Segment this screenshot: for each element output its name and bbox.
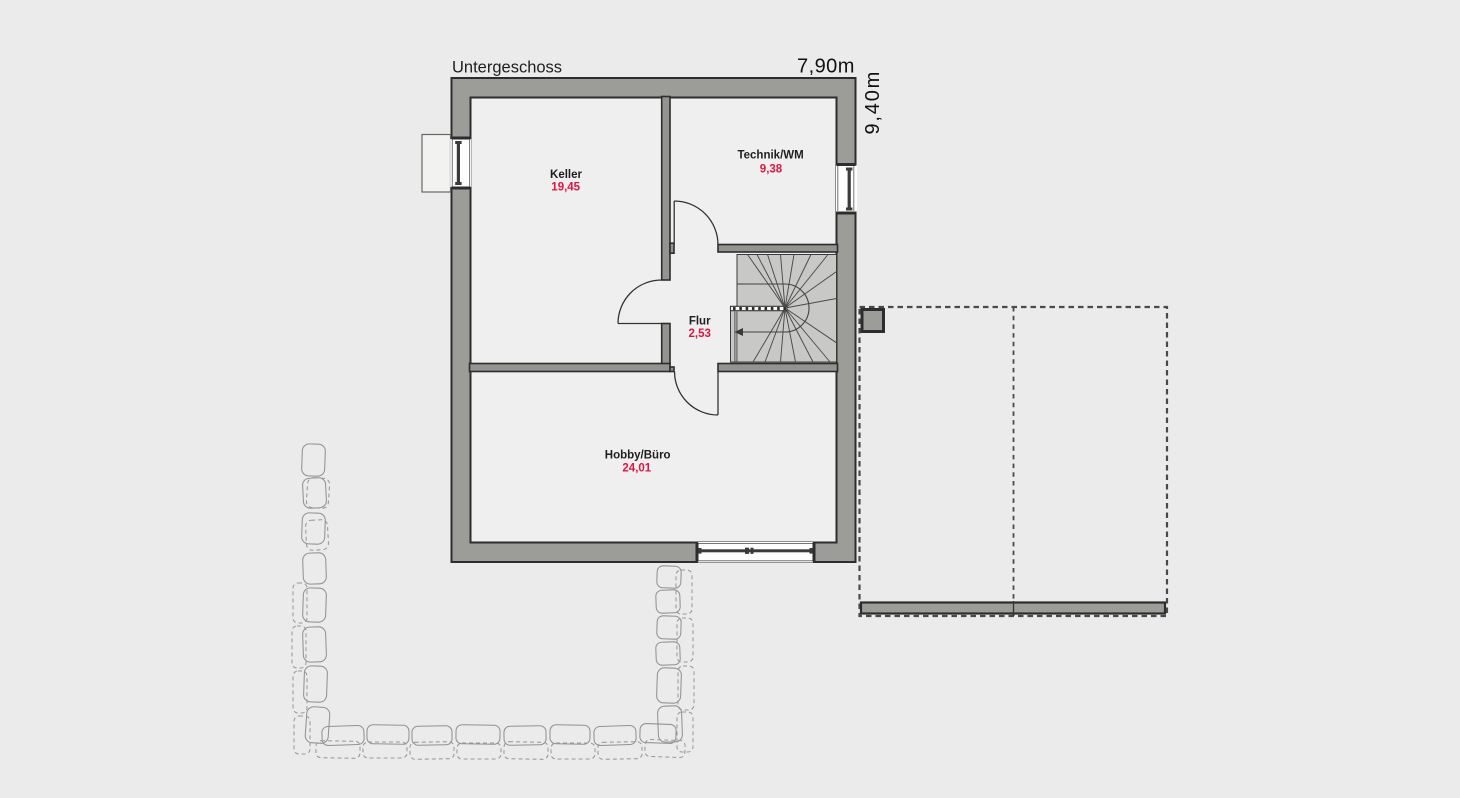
svg-text:Untergeschoss: Untergeschoss [452, 59, 562, 77]
svg-text:24,01: 24,01 [622, 463, 651, 475]
svg-text:Technik/WM: Technik/WM [737, 150, 803, 162]
svg-text:Keller: Keller [550, 169, 582, 181]
svg-text:2,53: 2,53 [689, 328, 711, 340]
svg-text:9,40m: 9,40m [862, 70, 884, 135]
svg-text:19,45: 19,45 [551, 182, 580, 194]
svg-text:Hobby/Büro: Hobby/Büro [605, 450, 671, 462]
svg-text:7,90m: 7,90m [797, 56, 855, 78]
svg-text:Flur: Flur [689, 316, 711, 328]
svg-text:9,38: 9,38 [760, 163, 783, 175]
